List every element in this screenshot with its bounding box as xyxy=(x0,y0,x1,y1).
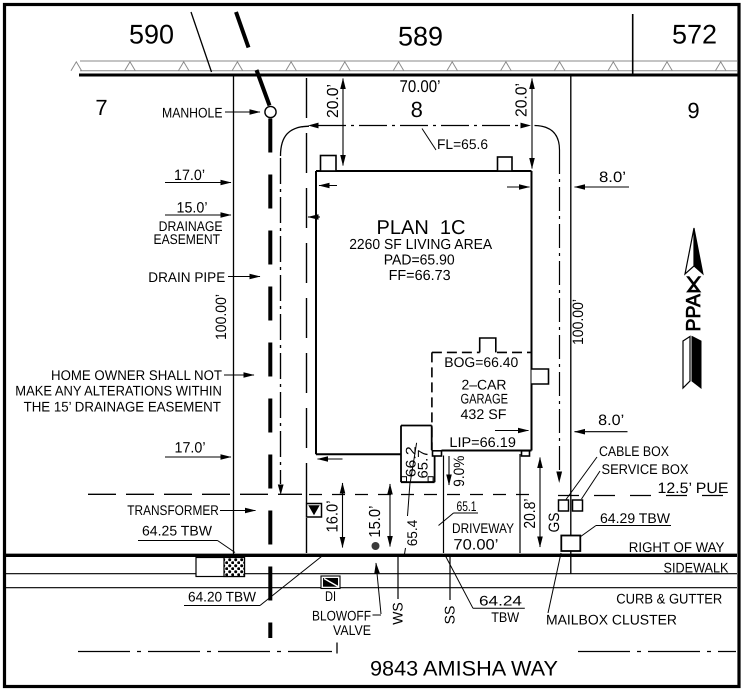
svg-text:100.00’: 100.00’ xyxy=(213,294,230,340)
svg-text:17.0’: 17.0’ xyxy=(174,167,205,184)
svg-text:64.24: 64.24 xyxy=(479,593,522,609)
svg-text:THE 15’ DRAINAGE EASEMENT: THE 15’ DRAINAGE EASEMENT xyxy=(24,399,222,415)
svg-text:20.0’: 20.0’ xyxy=(514,83,531,117)
svg-text:590: 590 xyxy=(129,20,174,50)
svg-text:12.5’ PUE: 12.5’ PUE xyxy=(658,480,729,497)
svg-text:572: 572 xyxy=(672,20,717,50)
svg-text:BOG=66.40: BOG=66.40 xyxy=(444,354,518,370)
svg-text:WS: WS xyxy=(390,602,406,625)
svg-text:15.0’: 15.0’ xyxy=(367,506,384,538)
svg-text:9843 AMISHA WAY: 9843 AMISHA WAY xyxy=(370,658,558,681)
svg-text:PLAN 1C: PLAN 1C xyxy=(377,217,466,239)
svg-text:15.0’: 15.0’ xyxy=(177,200,208,217)
svg-text:64.25 TBW: 64.25 TBW xyxy=(142,523,213,539)
svg-text:7: 7 xyxy=(95,95,107,120)
svg-text:TBW: TBW xyxy=(491,609,520,625)
svg-text:DRIVEWAY: DRIVEWAY xyxy=(452,520,515,536)
svg-text:DI: DI xyxy=(325,588,336,604)
svg-text:432 SF: 432 SF xyxy=(461,406,507,422)
svg-text:GARAGE: GARAGE xyxy=(461,391,509,407)
svg-text:8: 8 xyxy=(411,97,423,122)
svg-text:GS: GS xyxy=(546,513,563,533)
svg-text:FL=65.6: FL=65.6 xyxy=(437,136,488,152)
svg-text:FF=66.73: FF=66.73 xyxy=(389,268,451,284)
svg-text:70.00’: 70.00’ xyxy=(400,77,441,96)
svg-text:MAKE ANY ALTERATIONS WITHIN: MAKE ANY ALTERATIONS WITHIN xyxy=(15,383,222,399)
svg-text:8.0’: 8.0’ xyxy=(598,412,624,429)
svg-text:LIP=66.19: LIP=66.19 xyxy=(449,434,516,450)
svg-text:589: 589 xyxy=(398,22,443,52)
svg-text:65.4: 65.4 xyxy=(404,519,420,546)
svg-text:SIDEWALK: SIDEWALK xyxy=(664,560,730,576)
svg-text:64.20 TBW: 64.20 TBW xyxy=(188,589,257,605)
svg-text:65.7: 65.7 xyxy=(414,449,430,478)
svg-text:VALVE: VALVE xyxy=(333,622,371,638)
svg-text:PPA⋉: PPA⋉ xyxy=(683,275,705,332)
svg-text:100.00’: 100.00’ xyxy=(570,299,587,345)
svg-text:20.0’: 20.0’ xyxy=(325,84,342,118)
svg-text:SERVICE BOX: SERVICE BOX xyxy=(602,461,690,477)
svg-text:9: 9 xyxy=(687,98,699,123)
svg-text:SS: SS xyxy=(442,606,458,625)
svg-text:17.0’: 17.0’ xyxy=(175,440,206,457)
svg-text:2260 SF LIVING AREA: 2260 SF LIVING AREA xyxy=(349,237,492,253)
svg-text:9.0%: 9.0% xyxy=(451,456,468,487)
svg-text:65.1: 65.1 xyxy=(457,498,477,514)
svg-text:20.8’: 20.8’ xyxy=(522,499,539,529)
svg-text:EASEMENT: EASEMENT xyxy=(154,231,221,247)
svg-text:CURB & GUTTER: CURB & GUTTER xyxy=(616,591,722,607)
svg-text:HOME OWNER SHALL NOT: HOME OWNER SHALL NOT xyxy=(51,367,222,383)
svg-text:16.0’: 16.0’ xyxy=(325,501,342,533)
svg-text:MANHOLE: MANHOLE xyxy=(162,105,223,121)
svg-text:70.00’: 70.00’ xyxy=(453,537,498,554)
svg-text:8.0’: 8.0’ xyxy=(599,169,626,186)
svg-text:64.29 TBW: 64.29 TBW xyxy=(600,510,671,526)
svg-text:DRAIN PIPE: DRAIN PIPE xyxy=(148,269,225,285)
svg-text:MAILBOX CLUSTER: MAILBOX CLUSTER xyxy=(546,612,677,628)
svg-text:CABLE BOX: CABLE BOX xyxy=(599,443,670,459)
svg-text:TRANSFORMER: TRANSFORMER xyxy=(127,502,219,518)
svg-text:RIGHT OF WAY: RIGHT OF WAY xyxy=(629,539,725,555)
svg-text:PAD=65.90: PAD=65.90 xyxy=(384,253,455,269)
